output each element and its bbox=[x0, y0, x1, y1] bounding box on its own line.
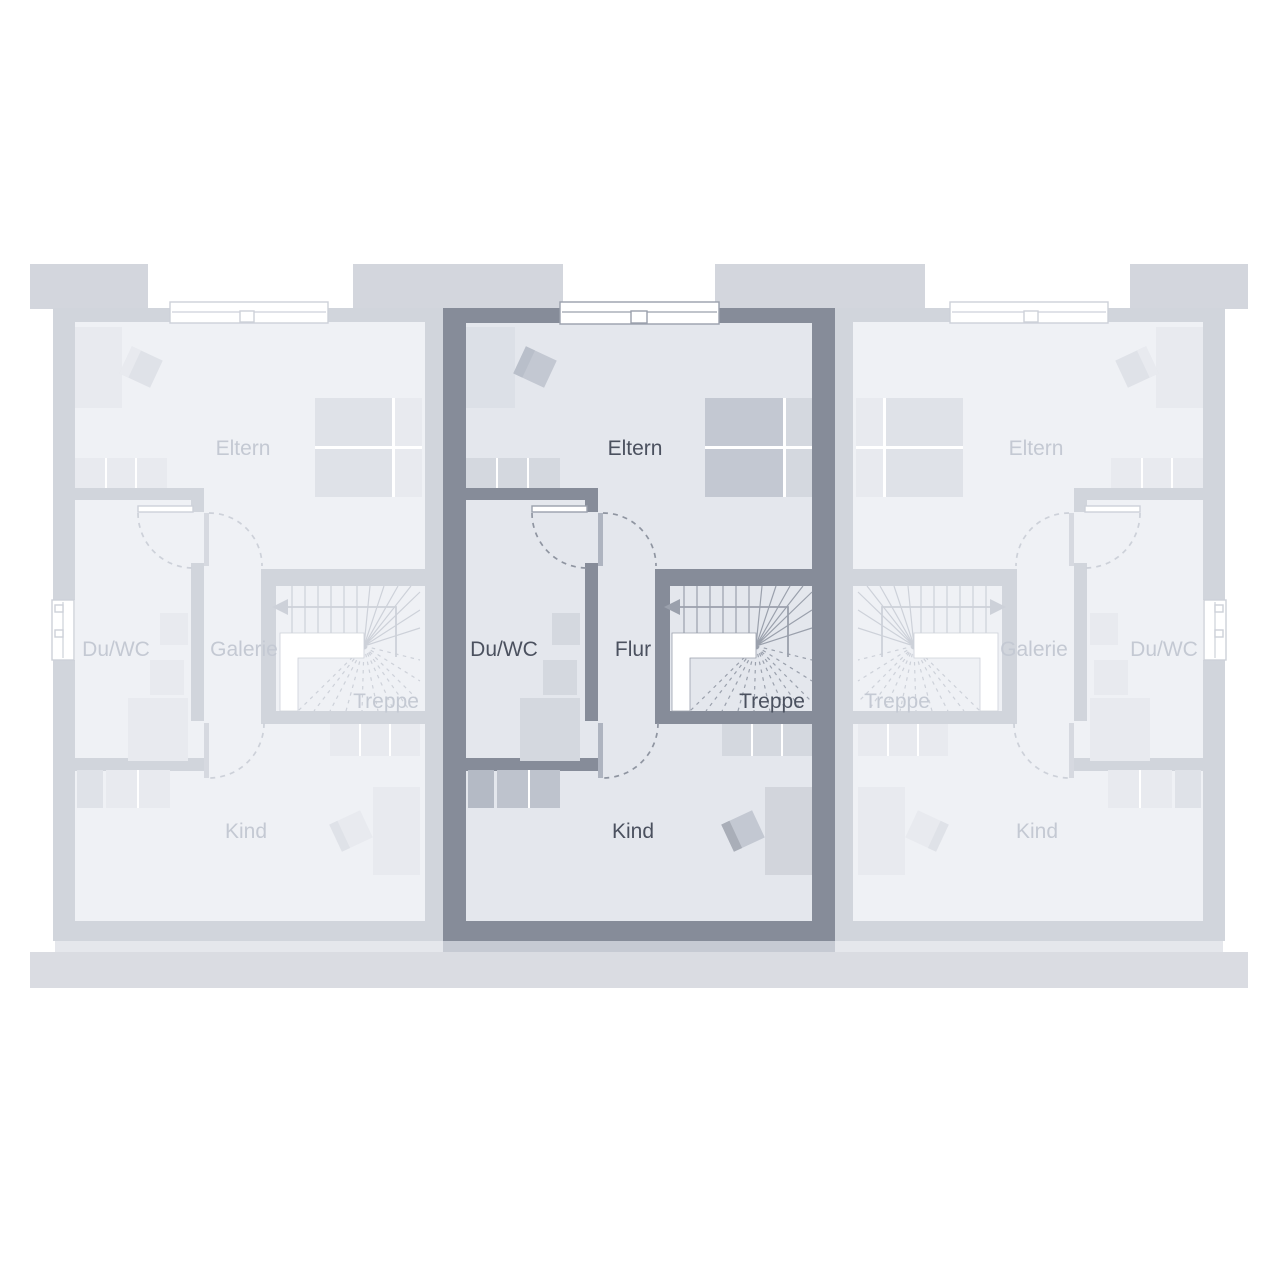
room-label-hall-right: Galerie bbox=[1000, 638, 1068, 661]
room-label-child-left: Kind bbox=[225, 820, 267, 843]
terrace-strip bbox=[30, 941, 1248, 988]
floor-plan-svg: Eltern Du/WC Galerie Treppe Kind Eltern … bbox=[0, 0, 1280, 1280]
bath-door-leaf bbox=[532, 506, 587, 512]
room-label-stairs-right: Treppe bbox=[864, 690, 930, 713]
room-label-hall-middle: Flur bbox=[615, 638, 651, 661]
unit-middle[interactable] bbox=[443, 302, 835, 941]
child-door-leaf bbox=[598, 723, 603, 778]
sink bbox=[552, 613, 580, 645]
room-label-bath-left: Du/WC bbox=[82, 638, 150, 661]
middle-unit-roof-window bbox=[560, 302, 719, 324]
room-label-bedroom-left: Eltern bbox=[216, 437, 271, 460]
room-label-child-middle: Kind bbox=[612, 820, 654, 843]
bedroom-door-leaf bbox=[598, 513, 603, 566]
room-label-bath-middle: Du/WC bbox=[470, 638, 538, 661]
under-stair-cabinet bbox=[722, 724, 812, 756]
sideboard bbox=[466, 458, 560, 488]
unit-left[interactable] bbox=[52, 302, 443, 941]
room-label-stairs-left: Treppe bbox=[353, 690, 419, 713]
toilet bbox=[543, 660, 577, 695]
double-bed bbox=[705, 398, 812, 497]
room-label-bedroom-middle: Eltern bbox=[608, 437, 663, 460]
dresser bbox=[468, 770, 494, 808]
room-label-child-right: Kind bbox=[1016, 820, 1058, 843]
room-label-stairs-middle: Treppe bbox=[739, 690, 805, 713]
wardrobe bbox=[466, 327, 515, 408]
room-label-bedroom-right: Eltern bbox=[1009, 437, 1064, 460]
unit-right[interactable] bbox=[835, 302, 1226, 941]
floor-plan-page: Eltern Du/WC Galerie Treppe Kind Eltern … bbox=[0, 0, 1280, 1280]
room-label-bath-right: Du/WC bbox=[1130, 638, 1198, 661]
room-label-hall-left: Galerie bbox=[210, 638, 278, 661]
shower bbox=[520, 698, 580, 761]
bed bbox=[765, 787, 812, 875]
